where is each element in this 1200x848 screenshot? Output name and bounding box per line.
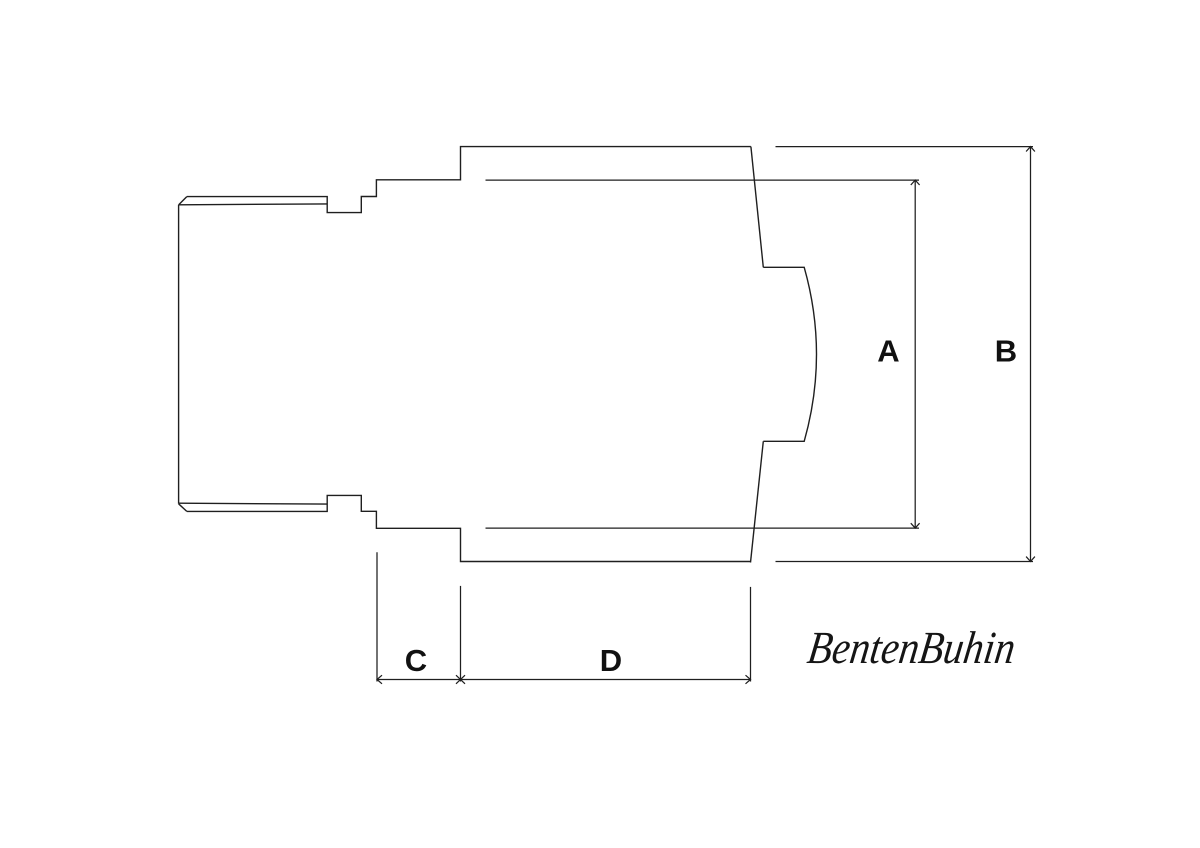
svg-text:BentenBuhin: BentenBuhin <box>805 622 1019 673</box>
svg-text:D: D <box>600 643 622 678</box>
svg-text:B: B <box>995 334 1017 369</box>
svg-text:C: C <box>405 643 427 678</box>
svg-text:A: A <box>877 334 899 369</box>
